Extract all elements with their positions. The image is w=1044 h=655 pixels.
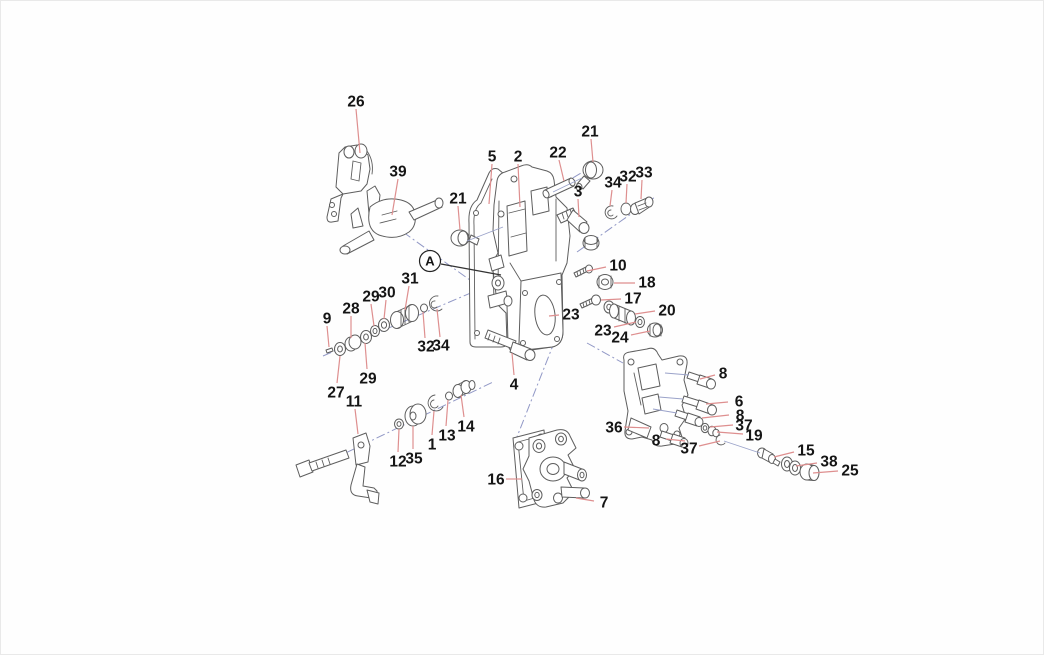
callout-label-c1: 1 — [428, 437, 437, 454]
callout-label-c26: 26 — [347, 94, 365, 111]
callout-c29b: 29 — [359, 343, 377, 388]
leader-line-c34b — [437, 309, 440, 337]
part-17-screw — [580, 295, 601, 308]
part-28-cup — [345, 335, 361, 351]
callout-label-c23b: 23 — [594, 323, 612, 340]
callout-label-c15: 15 — [797, 443, 815, 460]
callout-c27: 27 — [327, 356, 344, 402]
part-14-cylinder — [453, 381, 475, 398]
leader-line-c14 — [461, 395, 464, 417]
callout-c37b: 37 — [680, 441, 720, 458]
part-29-washer — [371, 326, 380, 337]
callout-label-c24: 24 — [611, 330, 629, 347]
callout-label-c25: 25 — [841, 463, 859, 480]
callout-c24: 24 — [611, 330, 650, 347]
leader-line-c12 — [398, 429, 399, 452]
part-11-lever — [351, 433, 379, 504]
callout-label-c33: 33 — [635, 165, 653, 182]
callout-label-c31: 31 — [401, 271, 419, 288]
callout-c1: 1 — [428, 411, 437, 454]
leader-line-c21a — [458, 206, 460, 230]
part-18-nut — [597, 275, 613, 290]
callout-c32a: 32 — [619, 169, 636, 204]
callout-c33: 33 — [635, 165, 653, 200]
callout-c9: 9 — [323, 311, 332, 348]
callout-label-c8c: 8 — [652, 433, 661, 450]
leader-line-c4 — [512, 353, 514, 375]
leader-line-c6 — [706, 402, 728, 404]
callout-c10: 10 — [587, 258, 627, 275]
part-9-pin — [326, 348, 333, 353]
parts-diagram-page: 2639522122213343233101817202323244313029… — [0, 0, 1044, 655]
leader-line-c22 — [559, 160, 564, 181]
callout-c11: 11 — [346, 394, 363, 435]
callout-label-c38: 38 — [820, 454, 838, 471]
callout-label-c13: 13 — [438, 428, 456, 445]
part-15-fitting — [758, 448, 781, 466]
exploded-parts-diagram: 2639522122213343233101817202323244313029… — [1, 1, 1044, 655]
callout-label-c21a: 21 — [449, 191, 467, 208]
callout-label-c2: 2 — [514, 149, 523, 166]
leader-line-c21b — [591, 139, 593, 162]
leader-line-c37b — [699, 441, 720, 446]
callout-label-c27: 27 — [327, 385, 344, 402]
callout-label-c35: 35 — [405, 451, 423, 468]
leader-line-c15 — [774, 452, 794, 457]
part-33-plug — [631, 197, 654, 215]
part-35-grommet — [405, 404, 426, 426]
callout-label-c30: 30 — [378, 285, 395, 302]
callout-label-c16: 16 — [487, 472, 505, 489]
callout-c29a: 29 — [362, 289, 380, 327]
callout-label-c11: 11 — [346, 394, 363, 411]
callout-label-c21b: 21 — [581, 124, 599, 141]
part-1-clip — [428, 395, 443, 411]
part-39-lever — [340, 186, 443, 254]
callout-label-c37b: 37 — [680, 441, 697, 458]
callout-label-c22: 22 — [549, 145, 566, 162]
callout-label-c3: 3 — [574, 184, 583, 201]
callout-label-c19: 19 — [745, 428, 763, 445]
leader-line-c29b — [365, 343, 367, 369]
leader-line-c8b — [702, 415, 729, 418]
leader-line-c13 — [446, 400, 448, 426]
part-31-adjuster — [391, 305, 419, 329]
callout-label-c34b: 34 — [432, 338, 450, 355]
callout-label-c28: 28 — [342, 301, 360, 318]
part-29-nut — [361, 331, 372, 344]
leader-line-c17 — [601, 299, 621, 300]
callout-c35: 35 — [405, 426, 423, 468]
callout-label-c23a: 23 — [562, 307, 580, 324]
part-7-feed-pump — [523, 430, 590, 508]
callout-label-c4: 4 — [510, 377, 519, 394]
part-nut-housing — [583, 236, 599, 251]
part-13-ball — [446, 392, 453, 400]
callout-label-c10: 10 — [609, 258, 626, 275]
part-34a-lockwasher — [605, 206, 617, 219]
leader-line-c9 — [327, 326, 329, 347]
part-32b-ball — [421, 304, 428, 312]
callout-c14: 14 — [457, 395, 475, 436]
callout-label-c29b: 29 — [359, 371, 377, 388]
leader-line-c30 — [384, 300, 386, 319]
callout-label-c36: 36 — [605, 420, 623, 437]
part-37b-clip — [716, 435, 725, 445]
callout-label-c39: 39 — [389, 164, 407, 181]
callout-label-c9: 9 — [323, 311, 332, 328]
callout-label-c14: 14 — [457, 419, 475, 436]
part-24-nut — [648, 323, 663, 337]
leader-line-c29a — [371, 304, 374, 326]
callout-c21b: 21 — [581, 124, 599, 163]
callout-c31: 31 — [401, 271, 419, 311]
part-8-bolt-top — [687, 372, 716, 389]
leader-line-c11 — [355, 409, 358, 434]
leader-line-c32b — [423, 312, 425, 338]
leader-line-c32a — [626, 184, 627, 203]
part-32a-snapring — [621, 203, 631, 215]
callout-c28: 28 — [342, 301, 360, 339]
part-23-washer — [636, 317, 645, 328]
leader-line-c34a — [610, 190, 612, 206]
callout-label-c12: 12 — [389, 454, 406, 471]
callout-c21a: 21 — [449, 191, 467, 231]
callout-label-c29a: 29 — [362, 289, 380, 306]
callout-c12: 12 — [389, 429, 406, 471]
parts-layer — [296, 144, 819, 508]
callout-c34b: 34 — [432, 309, 450, 355]
callout-label-c7: 7 — [600, 495, 609, 512]
part-bolt-lower-left — [296, 450, 349, 477]
part-34b-clip — [429, 296, 442, 311]
part-27-washer — [335, 343, 346, 356]
part-30-washer — [379, 319, 390, 332]
leader-line-c27 — [337, 356, 340, 383]
leader-line-c33 — [641, 180, 642, 199]
leader-line-c20 — [635, 311, 655, 314]
callout-c4: 4 — [510, 353, 519, 394]
part-6-bolt — [682, 396, 717, 415]
callout-label-c5: 5 — [488, 149, 497, 166]
part-36-governor-cover — [624, 348, 688, 446]
callout-c15: 15 — [774, 443, 815, 460]
callout-label-c18: 18 — [638, 275, 656, 292]
leader-line-c1 — [432, 411, 434, 435]
callout-label-c17: 17 — [624, 291, 641, 308]
part-12-washer — [395, 419, 404, 429]
callout-label-c20: 20 — [658, 303, 675, 320]
part-26-stop-bracket — [327, 144, 372, 222]
leader-line-c24 — [631, 331, 650, 335]
callout-label-c8a: 8 — [719, 366, 728, 383]
callout-label-c32a: 32 — [619, 169, 636, 186]
callout-label-cA: A — [425, 254, 435, 269]
callout-c18: 18 — [614, 275, 656, 292]
